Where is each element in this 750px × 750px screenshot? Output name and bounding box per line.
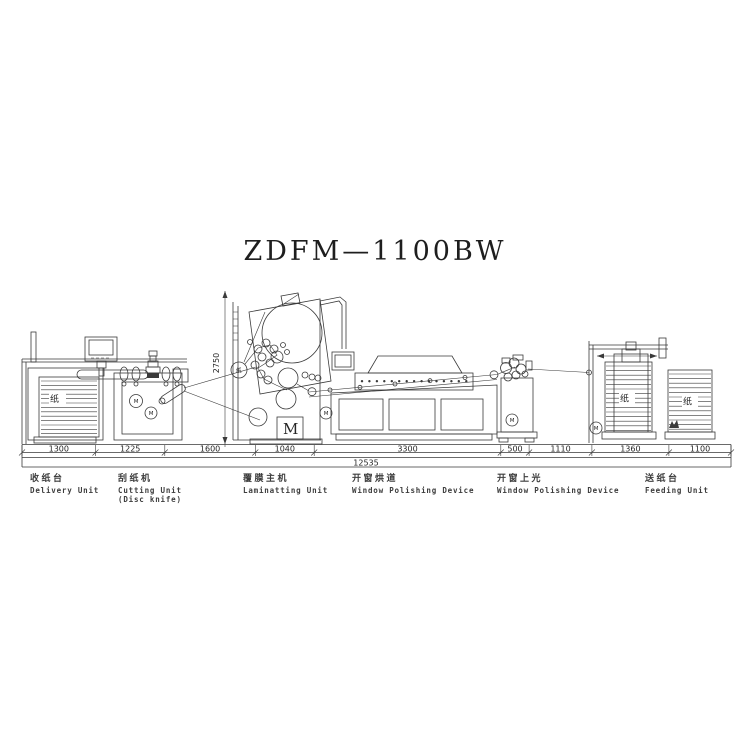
dim-total: 12535 — [353, 459, 378, 468]
label-window-polish: 开窗上光 Window Polishing Device — [497, 471, 619, 496]
label-zh: 收纸台 — [30, 471, 99, 484]
feed-pallet — [602, 432, 656, 439]
film-roll-label: 纸 — [236, 367, 242, 375]
exit-roller — [302, 372, 308, 378]
press-roller-lower — [276, 389, 296, 409]
machine-line-drawing: 纸 M M 27 — [0, 0, 750, 750]
dim-3300: 3300 — [397, 445, 417, 454]
roller — [162, 367, 170, 381]
dim-500: 500 — [507, 445, 522, 454]
feeder-post — [659, 338, 666, 358]
spare-pallet — [665, 432, 715, 439]
dim-1225: 1225 — [120, 445, 140, 454]
motor-label: M — [594, 426, 599, 432]
paper-stack-outline — [39, 377, 99, 437]
oven-panel — [389, 399, 435, 430]
oven-hood-upper — [368, 356, 462, 373]
foot — [499, 438, 508, 442]
knife-motor-top — [150, 356, 156, 361]
roller-bracket — [526, 361, 532, 370]
feeder-head — [622, 349, 640, 362]
label-zh: 刮纸机 — [118, 471, 182, 484]
dim-1110: 1110 — [550, 445, 570, 454]
oven-panel — [339, 399, 383, 430]
panel-screen — [335, 355, 351, 367]
knife-mount — [147, 373, 159, 378]
paper-label: 纸 — [620, 393, 630, 405]
motor-label: M — [510, 418, 515, 424]
paper-stack-lines — [41, 381, 97, 434]
dim-1360: 1360 — [620, 445, 640, 454]
motor-label: M — [134, 399, 139, 405]
label-zh: 开窗上光 — [497, 471, 619, 484]
monitor-body — [85, 337, 117, 361]
label-en2: (Disc knife) — [118, 496, 182, 505]
dim-arrow-top — [223, 291, 228, 298]
roller-pin — [164, 382, 168, 386]
delivery-left-frame — [22, 359, 26, 444]
roller-pin — [134, 382, 138, 386]
label-zh: 覆膜主机 — [243, 471, 328, 484]
dim-1600: 1600 — [200, 445, 220, 454]
label-zh: 送纸台 — [645, 471, 709, 484]
dimension-chain: 1300 1225 1600 1040 3300 500 1110 1360 1… — [19, 445, 734, 468]
delivery-top-rail — [22, 359, 187, 362]
polishing-unit: M — [497, 355, 537, 442]
cutting-unit: M M — [77, 351, 188, 440]
polishing-base — [497, 432, 537, 438]
press-roller-upper — [278, 368, 298, 388]
monitor-screen — [89, 340, 113, 355]
label-laminating-unit: 覆膜主机 Laminatting Unit — [243, 471, 328, 496]
roller-bracket — [513, 355, 523, 360]
main-motor-label: M — [283, 420, 298, 438]
feeding-unit: 纸 纸 M — [589, 338, 715, 443]
roller — [271, 351, 283, 363]
label-cutting-unit: 刮纸机 Cutting Unit (Disc knife) — [118, 471, 182, 504]
roller-pin — [285, 350, 290, 355]
paper-label: 纸 — [50, 393, 60, 405]
label-en: Laminatting Unit — [243, 487, 328, 496]
oven-base — [336, 434, 492, 440]
label-en: Window Polishing Device — [497, 487, 619, 496]
lift-symbol — [669, 420, 679, 428]
roller — [264, 376, 272, 384]
cutting-body — [114, 373, 182, 440]
label-en: Feeding Unit — [645, 487, 709, 496]
dim-arrow-bottom — [223, 437, 228, 444]
label-en: Window Polishing Device — [352, 487, 474, 496]
coating-roller — [504, 373, 512, 381]
web-conveyor — [308, 367, 592, 397]
sheet-feed-lines — [184, 367, 309, 420]
label-delivery-unit: 收纸台 Delivery Unit — [30, 471, 99, 496]
conveyor-lines — [309, 367, 589, 397]
infeed-rail — [77, 370, 148, 379]
dim-1040: 1040 — [275, 445, 295, 454]
paper-label: 纸 — [683, 396, 693, 408]
coating-roller — [516, 364, 526, 374]
foot — [525, 438, 534, 442]
exit-roller — [309, 374, 315, 380]
oven-panel — [441, 399, 483, 430]
delivery-post — [31, 332, 36, 362]
hood-vent-dots — [361, 380, 468, 382]
height-dimension: 2750 — [212, 291, 228, 447]
dim-1100: 1100 — [690, 445, 710, 454]
height-dim-value: 2750 — [212, 353, 221, 373]
roller — [258, 353, 266, 361]
motor-label: M — [149, 411, 154, 417]
dim-1300: 1300 — [49, 445, 69, 454]
frame-hatch — [233, 312, 238, 340]
label-en: Delivery Unit — [30, 487, 99, 496]
knife-motor-base — [146, 367, 160, 373]
laminating-drum — [262, 303, 322, 363]
panel-arm — [320, 297, 346, 349]
label-zh: 开窗烘道 — [352, 471, 474, 484]
delivery-unit: 纸 — [22, 332, 187, 444]
coating-roller — [509, 358, 519, 368]
motor-label: M — [324, 411, 329, 417]
roller-pin — [281, 343, 286, 348]
laminating-unit: 纸 M — [184, 293, 354, 444]
knife-motor-cap — [149, 351, 157, 356]
roller-pin — [122, 382, 126, 386]
window-polishing-oven: M — [320, 356, 497, 440]
knife-pivot — [159, 398, 165, 404]
label-window-oven: 开窗烘道 Window Polishing Device — [352, 471, 474, 496]
coating-roller — [501, 363, 512, 374]
label-feeding-unit: 送纸台 Feeding Unit — [645, 471, 709, 496]
